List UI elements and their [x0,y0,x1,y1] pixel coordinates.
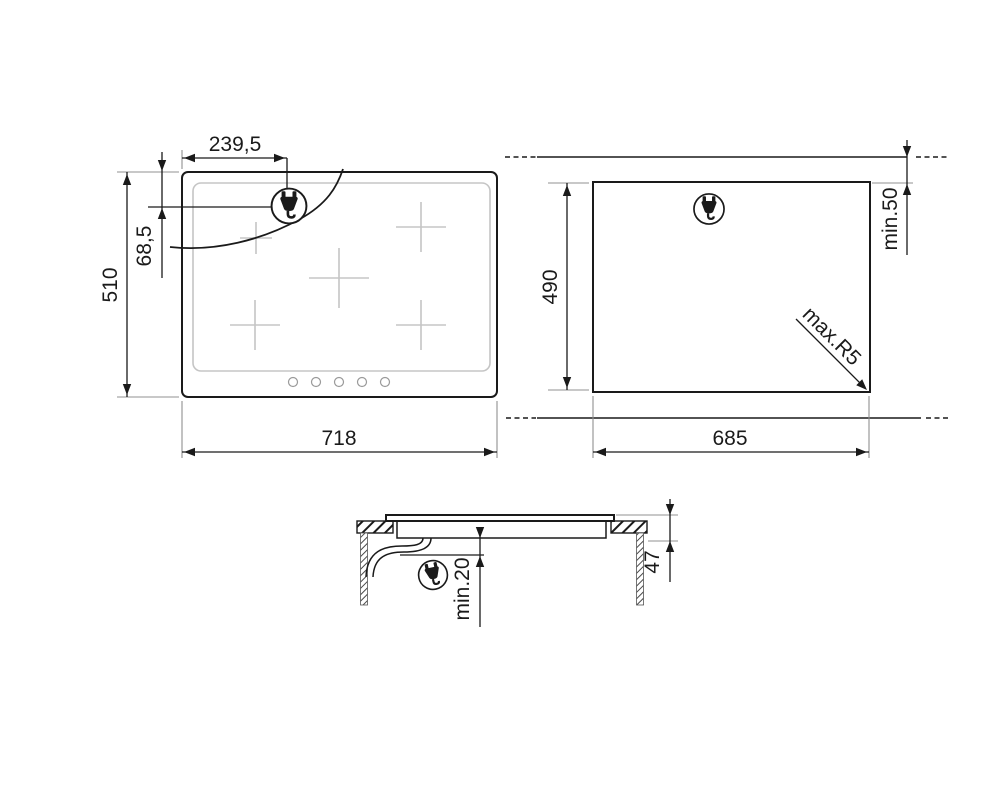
dim-label-cutout-depth: 490 [539,269,562,304]
knob-circle [289,378,298,387]
worktop-cutout-view: 490 min.50 max.R5 685 [505,140,948,458]
dim-label-hob-depth: 510 [99,267,122,302]
knob-circle [335,378,344,387]
power-cable [366,538,423,577]
dim-label-plug-offset-x: 239,5 [209,133,262,156]
power-plug-icon [416,558,450,592]
knob-circle [312,378,321,387]
worktop-section-right [611,521,647,533]
hob-installation-technical-drawing: 239,5 68,5 510 718 [0,0,1000,800]
worktop-section-left [357,521,393,533]
dim-label-rear-clearance: min.50 [879,187,902,250]
power-plug-icon [694,194,724,224]
dim-label-clearance-below: min.20 [451,557,474,620]
dim-label-cutout-width: 685 [712,427,747,450]
hob-glass-section [386,515,614,521]
dim-label-plug-offset-y: 68,5 [133,226,156,267]
power-plug-icon [272,189,307,224]
hob-body-section [397,521,606,538]
installation-section-view: min.20 47 [357,499,678,627]
cutout-opening [593,182,870,392]
dim-label-hob-width: 718 [321,427,356,450]
dim-label-built-in-depth: 47 [641,550,664,573]
hob-top-view: 239,5 68,5 510 718 [99,133,497,458]
knob-circle [358,378,367,387]
knob-circle [381,378,390,387]
